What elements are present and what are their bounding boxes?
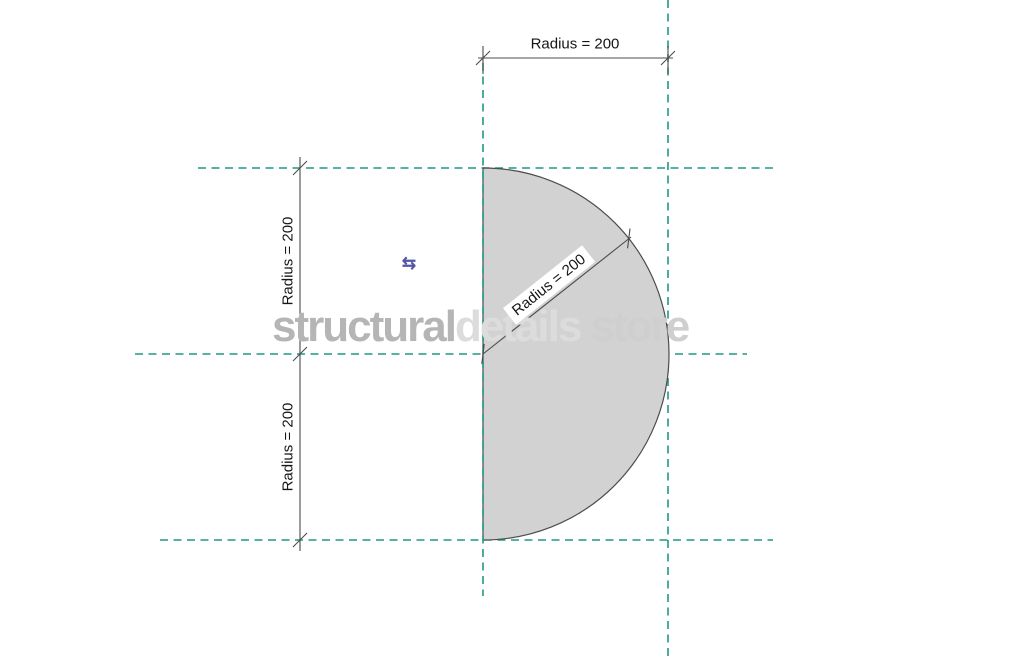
watermark-part-structural: structural [272, 302, 455, 351]
watermark-part-store: store [580, 302, 688, 351]
flip-control-icon[interactable]: ⇆ [402, 255, 416, 272]
watermark: structuraldetails store [272, 305, 688, 349]
semicircle-profile[interactable] [483, 168, 669, 540]
left-upper-radius-dimension-label: Radius = 200 [280, 217, 297, 306]
top-radius-dimension-label: Radius = 200 [531, 36, 620, 53]
left-lower-radius-dimension-label: Radius = 200 [280, 403, 297, 492]
drawing-canvas: structuraldetails store Radius = 200 Rad… [0, 0, 1024, 662]
